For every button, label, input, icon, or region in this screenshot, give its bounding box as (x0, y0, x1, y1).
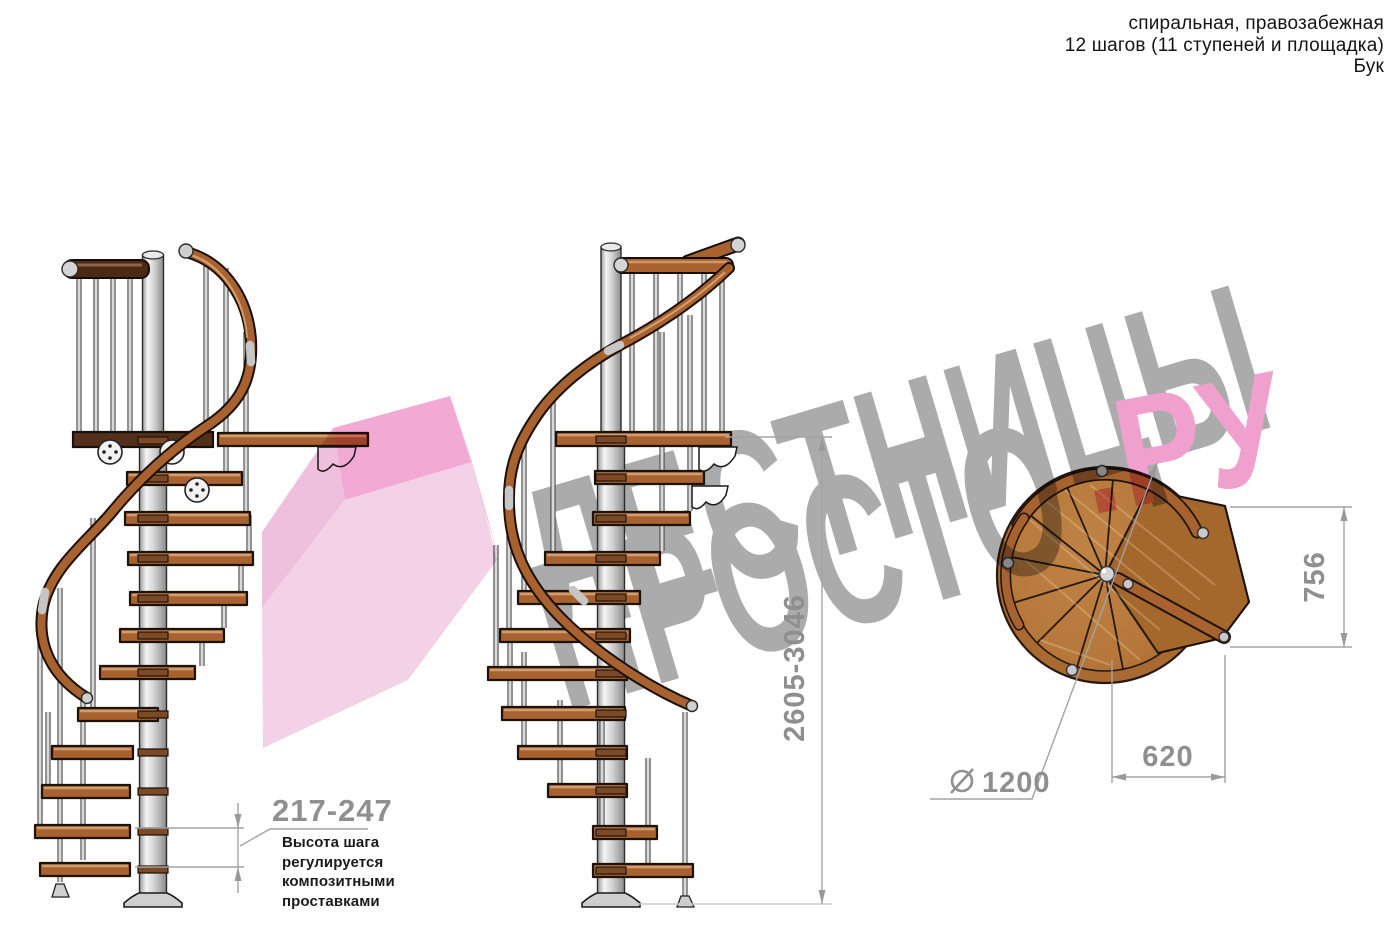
plan-center-pole (1100, 567, 1115, 582)
step-note-line: проставками (282, 892, 452, 912)
title-block: спиральная, правозабежная 12 шагов (11 с… (1065, 13, 1384, 78)
arrowhead (819, 890, 826, 904)
dimension-step-height: 217-247 (272, 793, 393, 828)
step-height-note: Высота шага регулируется композитными пр… (282, 833, 452, 911)
left-pole-base-flange (124, 893, 182, 907)
arrowhead (235, 814, 242, 828)
center-baluster-foot (677, 896, 694, 907)
arrowhead (1112, 774, 1126, 781)
center-top-handrail (615, 258, 733, 273)
drawing-sheet: ЛЕСТНИЦЫ ПРОСТО .РУ (0, 0, 1400, 950)
left-top-handrail-cap (62, 261, 78, 277)
dimension-total-height: 2605-3046 (779, 594, 811, 742)
step-note-line: Высота шага (282, 833, 452, 853)
plan-center-pole-highlight (1102, 569, 1106, 573)
step-note-line: регулируется (282, 853, 452, 873)
arrowhead (1211, 774, 1225, 781)
title-line-steps: 12 шагов (11 ступеней и площадка) (1065, 35, 1384, 57)
dimension-platform-depth-lines (1230, 507, 1352, 647)
pink-arrow-watermark (262, 396, 500, 748)
staircase-technical-drawing: ЛЕСТНИЦЫ ПРОСТО .РУ (0, 0, 1400, 950)
title-line-material: Бук (1065, 56, 1384, 78)
diameter-icon (951, 769, 973, 793)
left-handrail-end-cap (82, 693, 93, 704)
arrowhead (1341, 633, 1348, 647)
arrowhead (1341, 507, 1348, 521)
dimension-diameter: 1200 (982, 767, 1051, 799)
center-top-handrail-cap-left (614, 258, 628, 272)
dimension-platform-depth: 756 (1299, 551, 1331, 602)
center-handrail-end-cap (687, 701, 698, 712)
left-pole-upper (143, 255, 164, 450)
step-note-line: композитными (282, 872, 452, 892)
left-handrail-start-cap (179, 244, 193, 258)
left-pole-cap (143, 251, 164, 259)
dimension-platform-width: 620 (1142, 741, 1193, 773)
center-pole-base-flange (582, 893, 640, 907)
center-top-handrail-cap-right (731, 238, 745, 252)
center-pole-cap (601, 243, 621, 251)
arrowhead (235, 867, 242, 881)
left-baluster-foot (52, 884, 69, 897)
title-line-type: спиральная, правозабежная (1065, 13, 1384, 35)
